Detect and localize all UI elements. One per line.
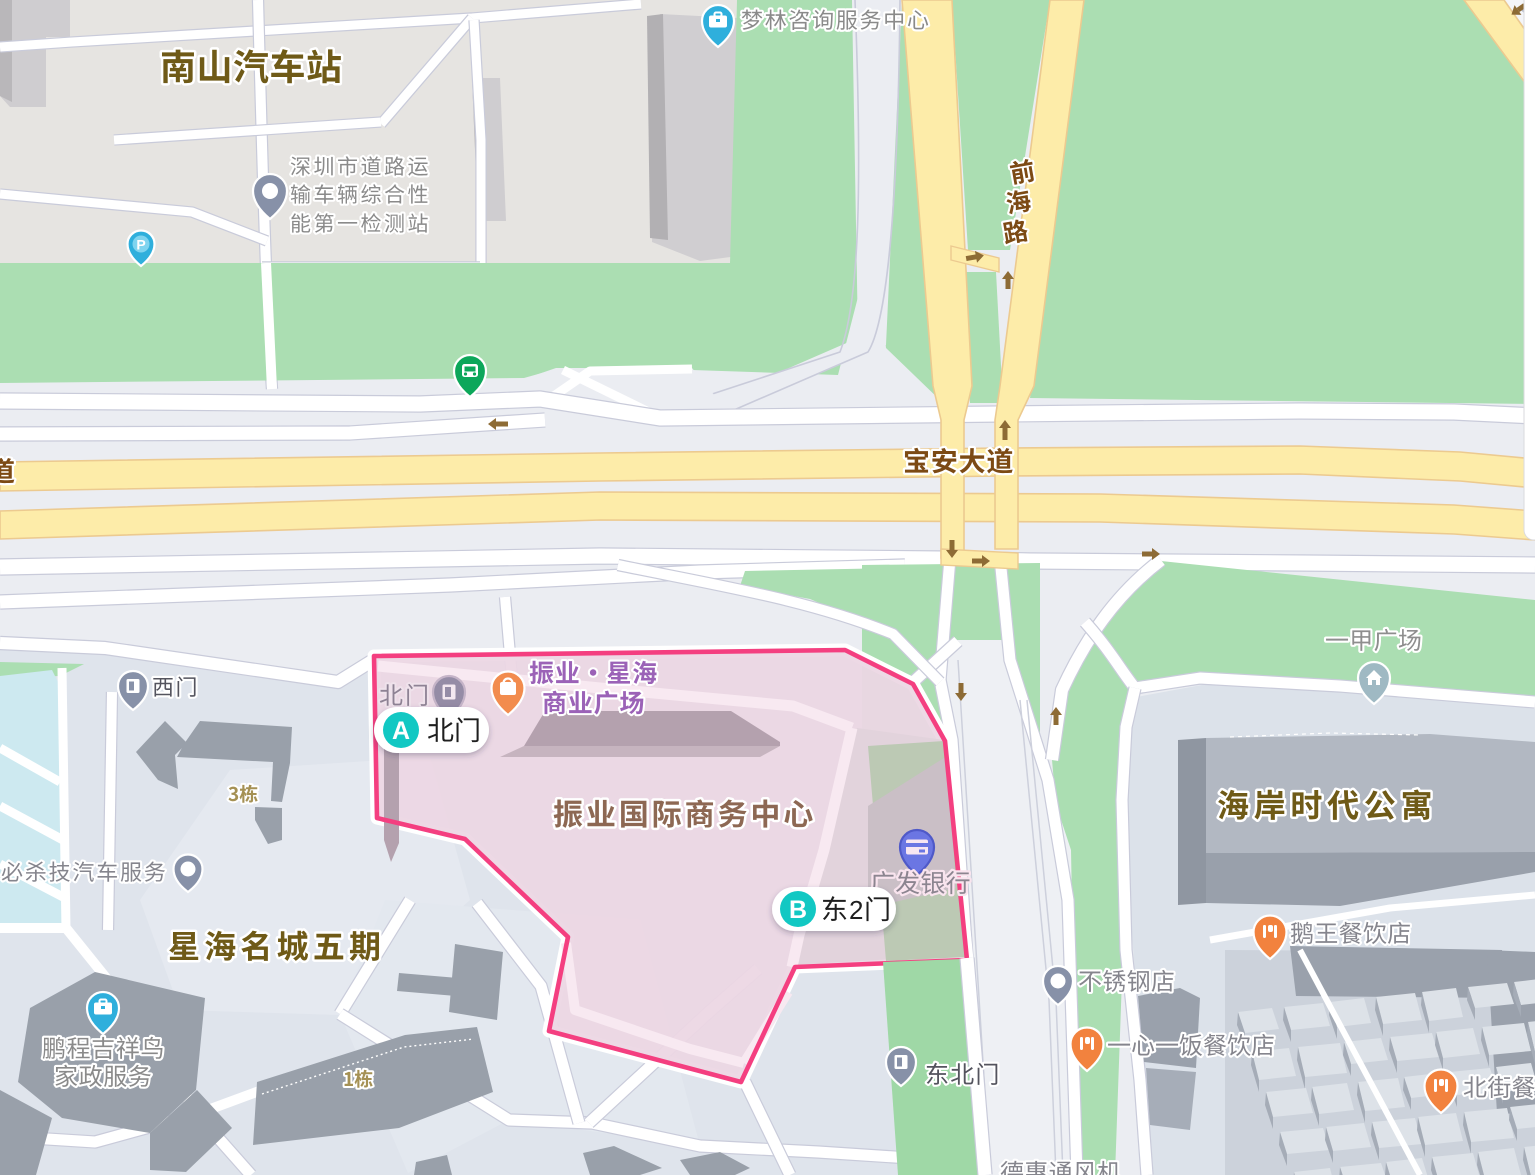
svg-text:A: A <box>392 717 410 745</box>
svg-text:P: P <box>136 237 145 253</box>
svg-text:B: B <box>789 896 807 924</box>
svg-text:2: 2 <box>849 895 863 925</box>
